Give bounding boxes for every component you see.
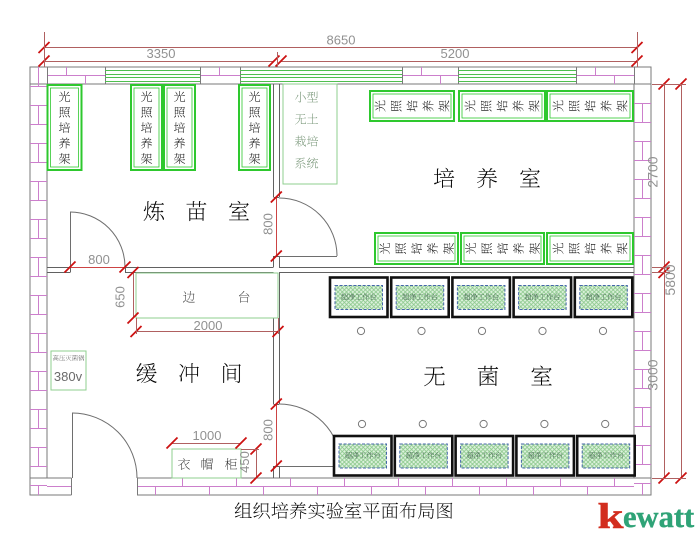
svg-text:8650: 8650 bbox=[327, 33, 356, 48]
svg-text:5800: 5800 bbox=[662, 264, 678, 295]
svg-text:450: 450 bbox=[237, 451, 252, 473]
svg-text:650: 650 bbox=[113, 286, 128, 308]
svg-text:2000: 2000 bbox=[194, 318, 223, 333]
svg-text:k: k bbox=[598, 497, 625, 537]
svg-text:2700: 2700 bbox=[645, 156, 661, 187]
svg-text:3350: 3350 bbox=[147, 46, 176, 61]
svg-text:ewatt: ewatt bbox=[623, 500, 695, 534]
svg-text:800: 800 bbox=[261, 213, 276, 235]
svg-text:3000: 3000 bbox=[645, 359, 661, 390]
svg-text:800: 800 bbox=[88, 252, 110, 267]
svg-text:800: 800 bbox=[261, 419, 276, 441]
svg-text:380v: 380v bbox=[54, 369, 83, 384]
svg-text:1000: 1000 bbox=[193, 428, 222, 443]
svg-text:5200: 5200 bbox=[441, 46, 470, 61]
